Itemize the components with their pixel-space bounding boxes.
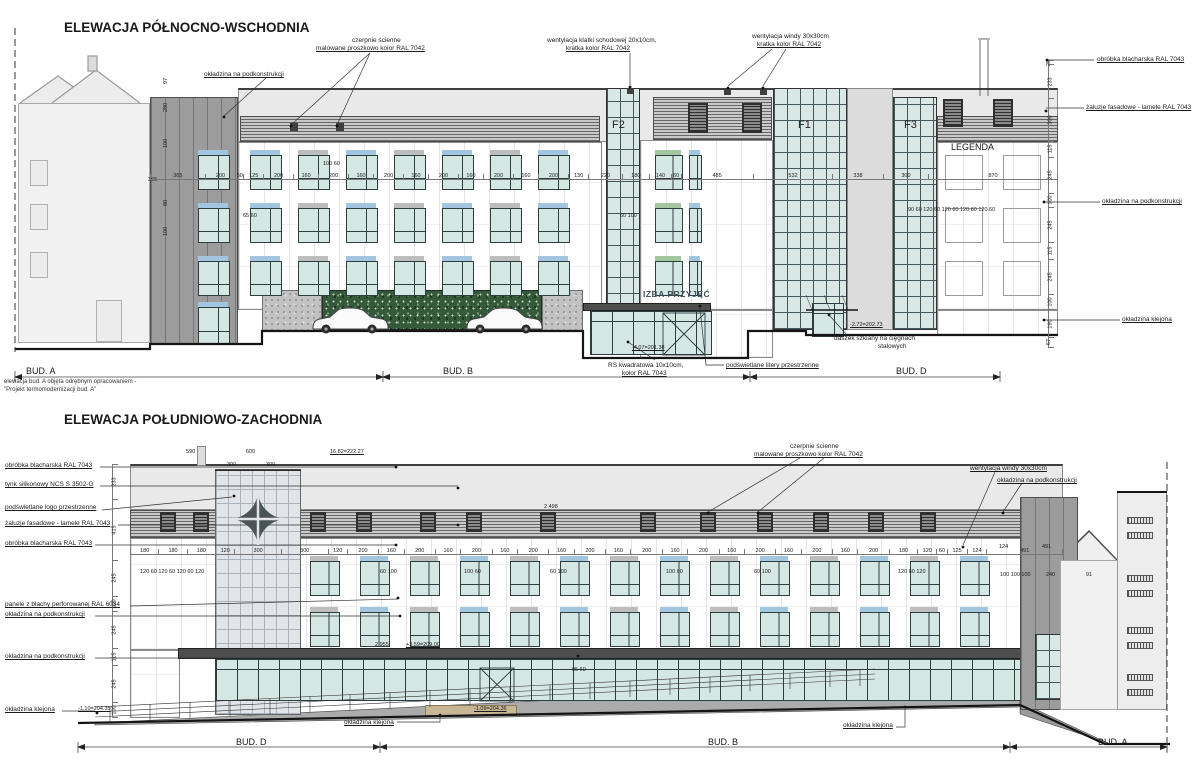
dimension-segment: 300 (883, 174, 928, 179)
section-label-bud-b: BUD. B (708, 737, 738, 747)
annotation-label: 120 60 120 60 120 60 120 (140, 569, 204, 575)
dimension-segment: 160 (348, 174, 373, 179)
annotation-label: daszek szklany na cięgnach (834, 335, 915, 342)
dimension-segment: 365 (150, 174, 205, 179)
annotation-label: 60 100 (550, 569, 567, 575)
annotation-label: okładzina klejona (843, 722, 893, 729)
annotation-label: malowane proszkowo kolor RAL 7042 (754, 451, 863, 458)
dimension-segment: 233 (1049, 64, 1054, 97)
annotation-label: 240 (1046, 572, 1055, 578)
dimension-segment: 200 (744, 549, 775, 554)
dimension-segment: 200 (538, 174, 568, 179)
dimension-segment: 200 (428, 174, 458, 179)
annotation-label: obróbka blacharska RAL 7043 (5, 540, 92, 547)
tower-label-f2: F2 (612, 119, 625, 131)
annotation-label: malowane proszkowo kolor RAL 7042 (316, 45, 425, 52)
annotation-label: 16.82=222.27 (330, 449, 364, 455)
dimension-segment: 160 (293, 174, 318, 179)
car (467, 308, 542, 334)
section-label-bud-d: BUD. D (896, 366, 927, 376)
annotation-label: -1.10=204.35 (78, 706, 111, 712)
annotation-label: 90 60 120 60 120 60 120 60 120 60 (908, 207, 995, 213)
dimension-segment: 120 (917, 549, 936, 554)
dimension-segment: 115 (1049, 141, 1054, 158)
annotation-label: żaluzje fasadowe - lamele RAL 7043 (1086, 104, 1191, 111)
dimension-segment: 120 (328, 549, 347, 554)
dimension-segment: 115 (113, 648, 118, 666)
annotation-label: +3.59=209.00 (406, 642, 440, 648)
dimension-segment: 100 (113, 596, 118, 611)
annotation-label: 300 (266, 462, 275, 468)
annotation-label: podświetlane litery przestrzenne (726, 362, 819, 369)
dimension-segment: 160 (492, 549, 517, 554)
dimension-segment: 100 (1049, 193, 1054, 208)
annotation-label: 60 100 (380, 569, 397, 575)
dimension-segment: 160 (662, 549, 687, 554)
dimension-segment: 180 (158, 549, 186, 554)
dimension-segment: 160 (719, 549, 744, 554)
elevation-title-northeast: ELEWACJA PÓŁNOCNO-WSCHODNIA (64, 20, 310, 36)
dimension-segment: 100 (1049, 294, 1054, 309)
dimension-segment: 140 (649, 174, 671, 179)
annotation-label: stalowych (878, 343, 907, 350)
annotation-label: kratka kolor RAL 7042 (566, 45, 630, 52)
annotation-label: żaluzje fasadowe - lamele RAL 7043 (5, 520, 110, 527)
dimension-segment: 160 (435, 549, 460, 554)
annotation-label: kolor RAL 7043 (622, 370, 667, 377)
annotation-label: 100 60 (464, 569, 481, 575)
annotation-label: 60 100 (620, 213, 637, 219)
dimension-segment: 160 (832, 549, 857, 554)
dimension-segment: 180 (889, 549, 917, 554)
annotation-label: 100 (163, 227, 169, 236)
annotation-label: kratka kolor RAL 7042 (757, 41, 821, 48)
dimension-segment: 300 (234, 549, 281, 554)
dimension-segment: 160 (403, 174, 428, 179)
bud-a-note-line2: "Projekt termomodernizacji bud. A" (4, 387, 96, 393)
annotation-label: okładzina na podkonstrukcji (204, 71, 284, 78)
section-label-bud-a: BUD. A (26, 366, 56, 376)
dimension-segment: 125 (947, 549, 967, 554)
dimension-segment: 870 (928, 174, 1058, 179)
dimension-segment: 190 (1049, 309, 1054, 336)
dimension-segment: 200 (630, 549, 661, 554)
elevation-title-southwest: ELEWACJA POŁUDNIOWO-ZACHODNIA (64, 412, 322, 428)
annotation-label: czerpnie ścienne (352, 37, 401, 44)
dimension-segment: 200 (263, 174, 293, 179)
section-label-bud-d: BUD. D (236, 737, 267, 747)
car (313, 308, 388, 334)
dimension-segment: 300 (1049, 98, 1054, 141)
dimension-segment: 245 (113, 560, 118, 596)
dimension-segment: 115 (1049, 242, 1054, 259)
annotation-label: 97 (163, 78, 169, 84)
dimension-segment: 300 (281, 549, 328, 554)
dimension-segment: 180 (130, 549, 158, 554)
dimension-segment: 200 (483, 174, 513, 179)
annotation-label: 80 (163, 200, 169, 206)
dimension-segment: 338 (832, 174, 883, 179)
dimension-chain: 1801801801203003001202001602001602001602… (130, 545, 1063, 555)
dimension-segment: 60 (671, 174, 681, 179)
dimension-segment: 160 (458, 174, 483, 179)
annotation-label: wentylacja windy 30x30cm (970, 465, 1047, 472)
elevation-drawing-sheet: ELEWACJA PÓŁNOCNO-WSCHODNIA ELEWACJA POŁ… (0, 0, 1200, 784)
dimension-segment: 160 (548, 549, 573, 554)
dimension-segment: 130 (568, 174, 588, 179)
dimension-segment: 200 (460, 549, 491, 554)
legend-title: LEGENDA (951, 142, 994, 152)
annotation-label: okładzina na podkonstrukcji (5, 653, 85, 660)
dimension-segment: 245 (1049, 259, 1054, 294)
dimension-segment: 200 (404, 549, 435, 554)
dimension-segment: 245 (113, 665, 118, 701)
annotation-label: 91 (1086, 572, 1092, 578)
dimension-segment: 200 (517, 549, 548, 554)
dimension-segment: 200 (205, 174, 235, 179)
annotation-label: obróbka blacharska RAL 7043 (5, 462, 92, 469)
dimension-segment: 124 (967, 549, 987, 554)
annotation-label: okładzina klejona (5, 706, 55, 713)
annotation-label: 100 (163, 139, 169, 148)
annotation-label: -1.09=204.36 (474, 706, 507, 712)
dimension-chain: 3652005012520016020016020016020016020016… (150, 170, 1058, 180)
dimension-segment: 200 (318, 174, 348, 179)
annotation-label: 60 100 (754, 569, 771, 575)
dimension-segment: 233 (113, 464, 118, 499)
annotation-label: 600 (246, 449, 255, 455)
annotation-label: -2.72=202.73 (850, 322, 883, 328)
dimension-segment: 60 (936, 549, 946, 554)
dimension-segment: 120 (215, 549, 234, 554)
annotation-label: okładzina klejona (1122, 316, 1172, 323)
dimension-segment: 220 (588, 174, 621, 179)
dimension-segment: 160 (513, 174, 538, 179)
dimension-segment: 200 (801, 549, 832, 554)
annotation-label: wentylacja windy 30x30cm (752, 33, 829, 40)
dimension-segment: 245 (113, 611, 118, 647)
annotation-label: 95 60 (572, 667, 586, 673)
dimension-segment: 415 (113, 499, 118, 560)
annotation-label: panele z blachy perforowanej RAL 6034 (5, 601, 120, 608)
annotation-label: 100 60 (323, 161, 340, 167)
annotation-label: okładzina na podkonstrukcji (997, 477, 1077, 484)
dimension-segment: 125 (243, 174, 262, 179)
annotation-label: 120 60 120 (898, 569, 926, 575)
annotation-label: 65 60 (243, 213, 257, 219)
dimension-segment: 200 (373, 174, 403, 179)
dimension-segment: 160 (378, 549, 403, 554)
dimension-chain: 2523330011524510024511524510019067 (1048, 60, 1059, 348)
annotation-label: tynk silikonowy NCS S 3502-G (5, 481, 94, 488)
bud-a-note-line1: elewacja bud. A objęta odrębnym opracowa… (4, 379, 136, 385)
dimension-segment: 200 (687, 549, 718, 554)
dimension-segment: 100 (113, 702, 118, 718)
annotation-label: 590 (186, 449, 195, 455)
dimension-segment: 245 (1049, 207, 1054, 242)
annotation-label: czerpnie ścienne (790, 443, 839, 450)
annotation-label: wentylacja klatki schodowej 20x10cm, (547, 37, 656, 44)
annotation-label: obróbka blacharska RAL 7043 (1097, 56, 1184, 63)
annotation-label: 2 955 (375, 642, 389, 648)
dimension-segment: 180 (622, 174, 649, 179)
dimension-segment: 485 (681, 174, 753, 179)
dimension-segment: 50 (235, 174, 243, 179)
annotation-label: podświetlane logo przestrzenne (5, 504, 96, 511)
dimension-segment: 67 (1049, 337, 1054, 348)
annotation-label: 100 100 100 (1000, 572, 1031, 578)
annotation-label: 280 (163, 103, 169, 112)
annotation-label: 100 60 (666, 569, 683, 575)
annotation-label: RS kwadratowa 10x10cm, (608, 362, 684, 369)
dimension-segment: 160 (605, 549, 630, 554)
annotation-label: okładzina na podkonstrukcji (5, 611, 85, 618)
dimension-segment: 491 (986, 549, 1063, 554)
annotation-label: okładzina klejona (344, 719, 394, 726)
entrance-sign: IZBA PRZYJĘĆ (643, 289, 710, 299)
dimension-segment: 200 (347, 549, 378, 554)
foreground-linework (0, 0, 1200, 784)
tower-label-f3: F3 (904, 119, 917, 131)
dimension-segment: 200 (574, 549, 605, 554)
dimension-chain: 233415245100245115245100 (112, 464, 123, 718)
annotation-label: -4.07=201.38 (632, 345, 665, 351)
dimension-segment: 180 (187, 549, 215, 554)
dimension-segment: 532 (753, 174, 832, 179)
annotation-label: okładzina na podkonstrukcji (1102, 198, 1182, 205)
tower-label-f1: F1 (798, 119, 811, 131)
dimension-segment: 200 (857, 549, 888, 554)
dimension-segment: 245 (1049, 157, 1054, 192)
annotation-label: 2 498 (544, 504, 558, 510)
annotation-label: 300 (227, 462, 236, 468)
dimension-segment: 160 (775, 549, 800, 554)
section-label-bud-b: BUD. B (443, 366, 473, 376)
section-label-bud-a: BUD. A (1098, 737, 1128, 747)
